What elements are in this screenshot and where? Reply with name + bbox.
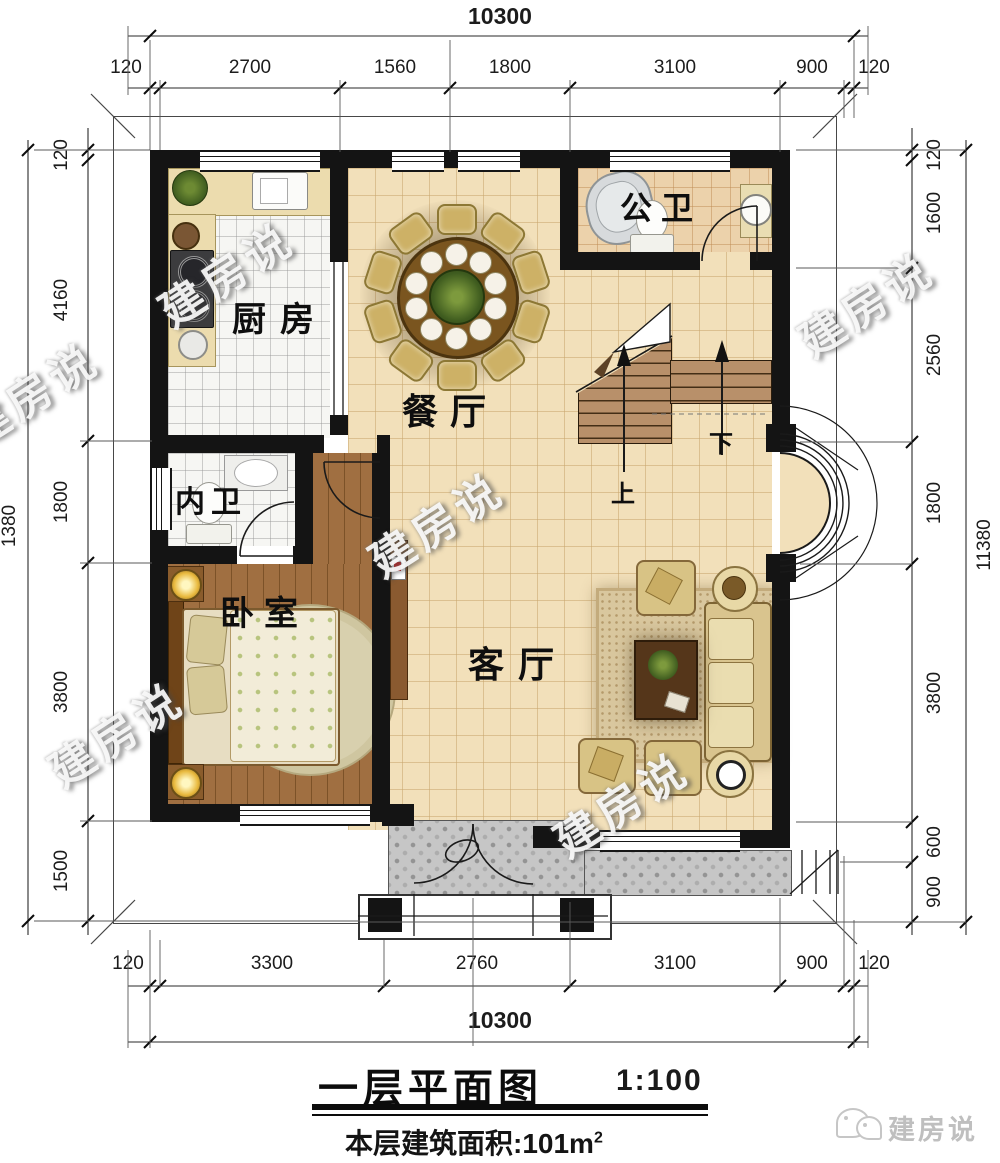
plan-linework bbox=[0, 0, 1000, 1163]
room-label-living: 客厅 bbox=[468, 636, 568, 688]
room-label-inner-bath: 内卫 bbox=[175, 477, 247, 521]
porch-platform-lines bbox=[358, 894, 608, 936]
terrace-steps bbox=[790, 850, 838, 894]
room-label-public-bath: 公卫 bbox=[620, 183, 702, 229]
kitchen-sliding-door bbox=[334, 262, 343, 415]
dimension-linework bbox=[22, 26, 972, 1048]
room-label-dining: 餐厅 bbox=[402, 383, 498, 435]
stair-label-down: 下 bbox=[709, 424, 733, 459]
floor-plan-canvas: 10300 120 2700 1560 1800 3100 900 120 12… bbox=[0, 0, 1000, 1163]
room-label-bedroom: 卧室 bbox=[220, 586, 308, 635]
stair-marks bbox=[576, 304, 768, 472]
stair-label-up: 上 bbox=[611, 474, 635, 509]
bay-window bbox=[780, 406, 877, 600]
room-label-kitchen: 厨房 bbox=[232, 292, 328, 341]
